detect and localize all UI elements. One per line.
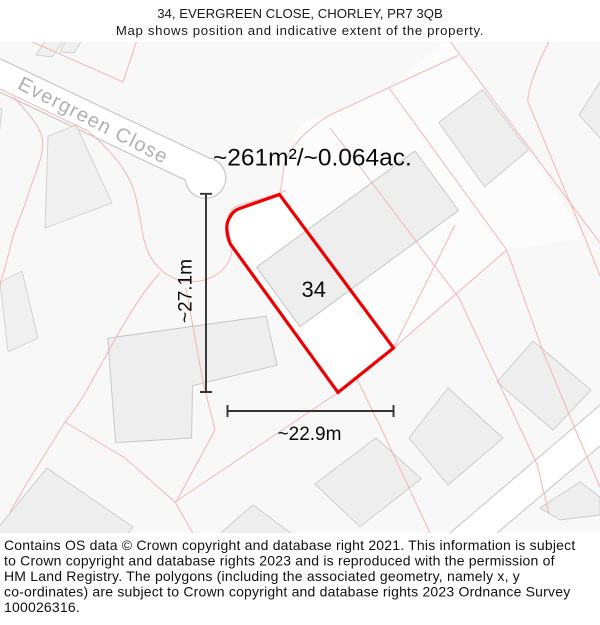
svg-text:34: 34 [302, 277, 326, 302]
svg-text:~261m²/~0.064ac.: ~261m²/~0.064ac. [213, 145, 412, 172]
svg-text:~22.9m: ~22.9m [278, 424, 342, 445]
svg-text:Map shows position and indicat: Map shows position and indicative extent… [116, 23, 484, 38]
svg-text:34, EVERGREEN CLOSE, CHORLEY,: 34, EVERGREEN CLOSE, CHORLEY, PR7 3QB [157, 6, 443, 21]
svg-text:~27.1m: ~27.1m [176, 259, 197, 323]
svg-text:co-ordinates) are subject to C: co-ordinates) are subject to Crown copyr… [4, 584, 570, 600]
svg-text:Contains OS data © Crown copyr: Contains OS data © Crown copyright and d… [4, 537, 575, 553]
svg-text:100026316.: 100026316. [4, 599, 80, 615]
svg-text:to Crown copyright and databas: to Crown copyright and database rights 2… [4, 553, 555, 569]
svg-text:HM Land Registry. The polygons: HM Land Registry. The polygons (includin… [4, 568, 520, 584]
